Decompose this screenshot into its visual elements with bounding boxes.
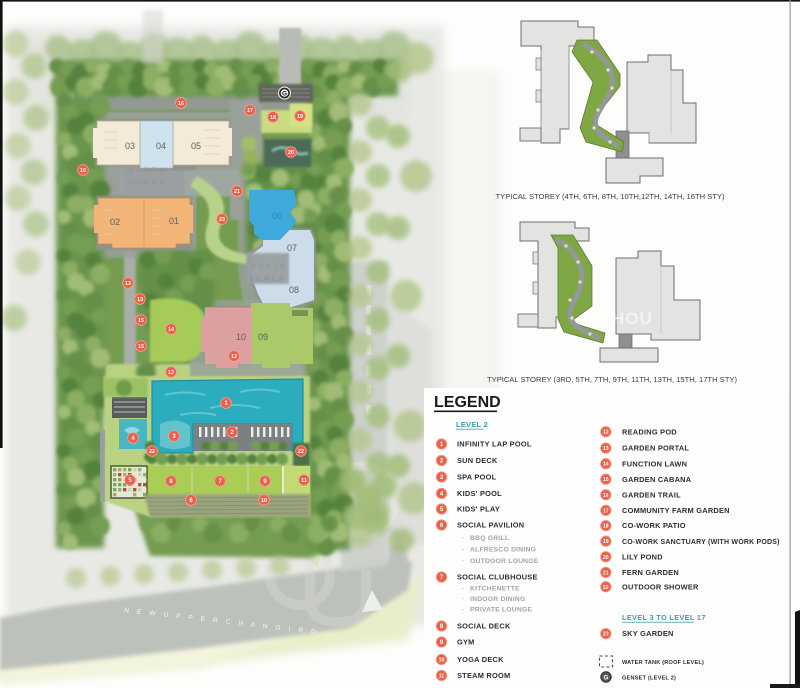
svg-text:21: 21 (234, 189, 240, 195)
svg-text:08: 08 (289, 285, 299, 295)
svg-text:17: 17 (603, 508, 609, 514)
svg-text:COMMUNITY FARM GARDEN: COMMUNITY FARM GARDEN (622, 506, 730, 515)
svg-text:22: 22 (603, 585, 609, 591)
svg-text:09: 09 (258, 332, 268, 342)
svg-text:KITCHENETTE: KITCHENETTE (470, 585, 520, 592)
svg-text:PRIVATE LOUNGE: PRIVATE LOUNGE (470, 606, 532, 613)
svg-text:OUTDOOR SHOWER: OUTDOOR SHOWER (622, 582, 699, 591)
svg-text:13: 13 (603, 446, 609, 452)
svg-text:14: 14 (603, 462, 609, 468)
svg-text:LEVEL 2: LEVEL 2 (456, 420, 488, 429)
svg-text:16: 16 (80, 168, 86, 174)
svg-text:12: 12 (603, 430, 609, 436)
svg-text:15: 15 (603, 477, 609, 483)
svg-text:SOCIAL PAVILION: SOCIAL PAVILION (457, 521, 524, 530)
svg-text:-: - (462, 535, 464, 542)
svg-text:19: 19 (603, 539, 609, 545)
svg-text:OUTDOOR LOUNGE: OUTDOOR LOUNGE (470, 558, 539, 565)
svg-text:GENSET (LEVEL 2): GENSET (LEVEL 2) (622, 676, 676, 682)
svg-text:TYPICAL STOREY (4TH, 6TH, 8TH,: TYPICAL STOREY (4TH, 6TH, 8TH, 10TH,12TH… (496, 192, 725, 201)
svg-text:18: 18 (603, 524, 609, 530)
svg-text:G: G (604, 675, 609, 682)
svg-text:10: 10 (439, 658, 445, 664)
svg-text:-: - (462, 558, 464, 565)
svg-text:02: 02 (110, 217, 120, 227)
svg-text:13: 13 (168, 370, 174, 376)
svg-text:05: 05 (191, 141, 201, 151)
svg-text:10: 10 (261, 498, 267, 504)
svg-text:15: 15 (138, 318, 144, 324)
svg-text:SKY GARDEN: SKY GARDEN (622, 629, 674, 638)
svg-text:CO-WORK PATIO: CO-WORK PATIO (622, 521, 686, 530)
svg-text:22: 22 (298, 449, 304, 455)
svg-text:GYM: GYM (457, 638, 475, 647)
svg-text:11: 11 (439, 674, 445, 680)
svg-text:01: 01 (169, 216, 179, 226)
svg-text:23: 23 (603, 632, 609, 638)
svg-text:HOU: HOU (612, 309, 653, 328)
svg-text:17: 17 (247, 108, 253, 114)
svg-text:KIDS' POOL: KIDS' POOL (457, 489, 502, 498)
svg-text:LEGEND: LEGEND (434, 394, 501, 411)
svg-text:SOCIAL DECK: SOCIAL DECK (457, 622, 511, 631)
svg-text:21: 21 (603, 570, 609, 576)
svg-text:TOWER: TOWER (128, 180, 168, 187)
svg-text:19: 19 (297, 114, 303, 120)
svg-text:NORTH: NORTH (129, 167, 168, 174)
svg-text:WATER TANK (ROOF LEVEL): WATER TANK (ROOF LEVEL) (622, 660, 704, 666)
svg-text:SOCIAL CLUBHOUSE: SOCIAL CLUBHOUSE (457, 573, 538, 582)
svg-text:INFINITY LAP POOL: INFINITY LAP POOL (457, 440, 532, 449)
svg-text:LEVEL 3 TO LEVEL 17: LEVEL 3 TO LEVEL 17 (622, 613, 706, 622)
svg-text:STEAM ROOM: STEAM ROOM (457, 671, 510, 680)
svg-text:INDOOR DINING: INDOOR DINING (470, 596, 525, 603)
svg-text:15: 15 (138, 344, 144, 350)
svg-text:SOUTH: SOUTH (251, 263, 286, 270)
svg-text:14: 14 (168, 327, 174, 333)
svg-text:BBQ GRILL: BBQ GRILL (470, 535, 509, 542)
svg-text:03: 03 (125, 141, 135, 151)
svg-text:16: 16 (603, 493, 609, 499)
svg-text:TYPICAL STOREY (3RD, 5TH, 7TH,: TYPICAL STOREY (3RD, 5TH, 7TH, 9TH, 11TH… (487, 375, 737, 384)
svg-text:10: 10 (236, 332, 246, 342)
svg-text:KIDS' PLAY: KIDS' PLAY (457, 505, 500, 514)
svg-text:FERN GARDEN: FERN GARDEN (622, 568, 679, 577)
svg-text:ALFRESCO DINING: ALFRESCO DINING (470, 546, 536, 553)
svg-text:-: - (462, 585, 464, 592)
svg-text:06: 06 (272, 211, 282, 221)
svg-text:GARDEN PORTAL: GARDEN PORTAL (622, 444, 689, 453)
svg-text:13: 13 (137, 297, 143, 303)
svg-text:23: 23 (219, 217, 225, 223)
svg-text:04: 04 (156, 141, 166, 151)
svg-text:GARDEN CABANA: GARDEN CABANA (622, 475, 692, 484)
svg-text:G: G (282, 91, 287, 98)
svg-text:SUN DECK: SUN DECK (457, 456, 498, 465)
svg-text:TOWER: TOWER (250, 276, 287, 283)
svg-text:12: 12 (125, 281, 131, 287)
svg-text:20: 20 (288, 150, 294, 156)
svg-text:20: 20 (603, 555, 609, 561)
svg-text:GARDEN TRAIL: GARDEN TRAIL (622, 490, 681, 499)
svg-text:18: 18 (270, 115, 276, 121)
svg-text:12: 12 (231, 354, 237, 360)
svg-text:SPA POOL: SPA POOL (457, 473, 497, 482)
svg-text:11: 11 (301, 478, 307, 484)
svg-text:-: - (462, 606, 464, 613)
svg-text:22: 22 (149, 449, 155, 455)
svg-text:-: - (462, 546, 464, 553)
svg-text:16: 16 (178, 101, 184, 107)
svg-text:YOGA DECK: YOGA DECK (457, 655, 504, 664)
svg-text:LILY POND: LILY POND (622, 552, 663, 561)
svg-text:FUNCTION LAWN: FUNCTION LAWN (622, 459, 687, 468)
svg-text:READING POD: READING POD (622, 427, 677, 436)
svg-text:-: - (462, 596, 464, 603)
svg-text:07: 07 (287, 243, 297, 253)
svg-text:CO-WORK SANCTUARY (WITH WORK P: CO-WORK SANCTUARY (WITH WORK PODS) (622, 539, 780, 546)
